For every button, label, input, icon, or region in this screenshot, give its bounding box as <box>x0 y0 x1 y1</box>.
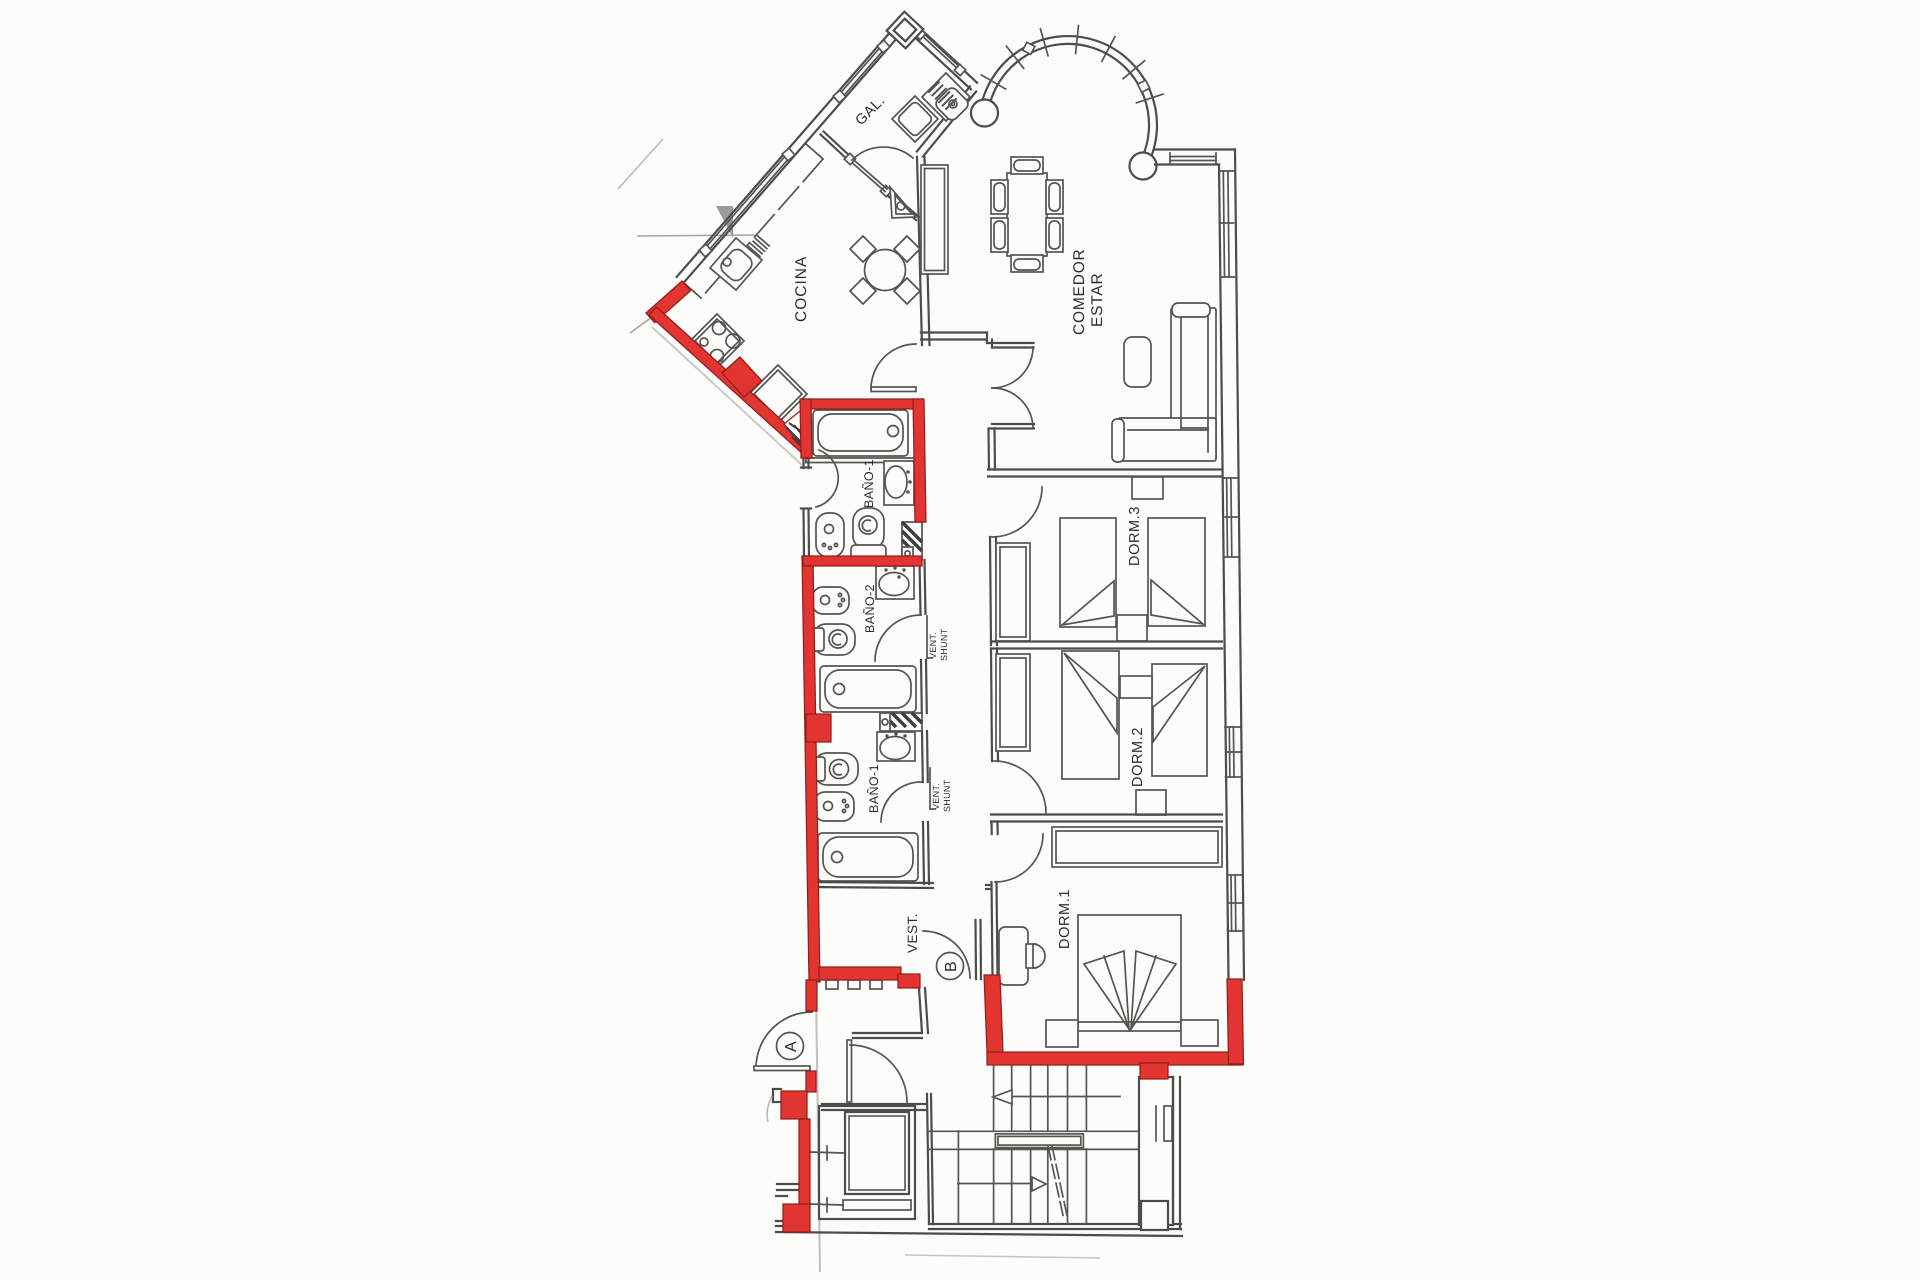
svg-text:BAÑO-1: BAÑO-1 <box>867 764 881 813</box>
svg-text:B: B <box>943 961 960 972</box>
svg-text:VEST.: VEST. <box>905 913 920 953</box>
svg-text:A: A <box>783 1041 800 1052</box>
svg-text:ESTAR: ESTAR <box>1089 272 1106 327</box>
svg-text:COCINA: COCINA <box>793 256 810 322</box>
svg-text:VENT.: VENT. <box>931 783 941 810</box>
svg-text:SHUNT: SHUNT <box>939 628 949 661</box>
svg-text:DORM.2: DORM.2 <box>1130 727 1146 787</box>
svg-text:COMEDOR: COMEDOR <box>1071 248 1088 335</box>
svg-text:BAÑO-2: BAÑO-2 <box>863 584 877 633</box>
svg-text:DORM.1: DORM.1 <box>1057 889 1073 949</box>
svg-text:SHUNT: SHUNT <box>942 779 952 812</box>
svg-text:VENT.: VENT. <box>928 632 938 659</box>
svg-text:DORM.3: DORM.3 <box>1127 506 1143 566</box>
svg-text:BAÑO-1: BAÑO-1 <box>862 459 876 508</box>
